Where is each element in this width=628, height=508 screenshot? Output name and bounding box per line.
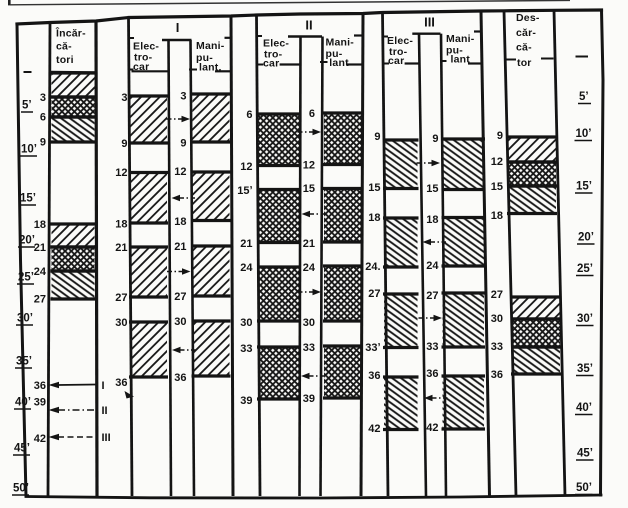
svg-text:15ʼ: 15ʼ bbox=[20, 193, 36, 205]
svg-text:36: 36 bbox=[174, 372, 186, 384]
svg-text:42: 42 bbox=[368, 423, 380, 435]
svg-text:12: 12 bbox=[303, 160, 315, 172]
svg-text:33: 33 bbox=[240, 343, 252, 355]
svg-text:lant: lant bbox=[451, 54, 471, 66]
svg-text:3: 3 bbox=[180, 91, 186, 103]
svg-text:33: 33 bbox=[426, 341, 438, 353]
svg-text:12: 12 bbox=[491, 156, 503, 168]
svg-text:Mani-: Mani- bbox=[446, 33, 475, 45]
svg-text:30: 30 bbox=[491, 313, 503, 325]
svg-text:15ʼ: 15ʼ bbox=[237, 185, 252, 197]
svg-text:10ʼ: 10ʼ bbox=[576, 128, 592, 140]
svg-text:36: 36 bbox=[368, 370, 380, 382]
svg-text:20ʼ: 20ʼ bbox=[578, 232, 594, 244]
svg-text:căr-: căr- bbox=[516, 27, 536, 39]
svg-text:18: 18 bbox=[174, 216, 186, 228]
svg-text:27: 27 bbox=[34, 294, 46, 306]
svg-text:tor: tor bbox=[517, 57, 532, 69]
svg-text:că-: că- bbox=[516, 42, 532, 54]
svg-text:35ʼ: 35ʼ bbox=[577, 363, 593, 375]
svg-text:36: 36 bbox=[34, 380, 46, 392]
svg-text:27: 27 bbox=[491, 289, 503, 301]
svg-text:21: 21 bbox=[240, 238, 252, 250]
svg-text:lant,: lant, bbox=[199, 62, 222, 74]
svg-text:9: 9 bbox=[40, 137, 46, 149]
svg-text:40ʼ: 40ʼ bbox=[576, 402, 592, 414]
svg-text:I: I bbox=[102, 380, 105, 392]
svg-text:18: 18 bbox=[368, 212, 380, 224]
svg-text:21: 21 bbox=[303, 238, 315, 250]
svg-text:II: II bbox=[102, 405, 108, 417]
svg-text:9: 9 bbox=[180, 138, 186, 150]
svg-text:21: 21 bbox=[174, 241, 186, 253]
svg-text:39: 39 bbox=[34, 397, 46, 409]
svg-text:9: 9 bbox=[497, 130, 503, 142]
svg-text:Încăr-: Încăr- bbox=[55, 27, 86, 40]
svg-text:30: 30 bbox=[174, 316, 186, 328]
svg-text:25ʼ: 25ʼ bbox=[577, 263, 593, 275]
svg-text:30: 30 bbox=[115, 317, 127, 329]
svg-text:car: car bbox=[133, 61, 149, 73]
svg-text:3: 3 bbox=[121, 92, 127, 104]
svg-text:27: 27 bbox=[368, 288, 380, 300]
svg-text:36: 36 bbox=[115, 377, 127, 389]
svg-text:30ʼ: 30ʼ bbox=[577, 313, 593, 325]
svg-text:27: 27 bbox=[426, 290, 438, 302]
svg-text:10ʼ: 10ʼ bbox=[21, 144, 37, 156]
svg-text:12: 12 bbox=[240, 161, 252, 173]
svg-text:42: 42 bbox=[426, 422, 438, 434]
svg-text:30: 30 bbox=[240, 317, 252, 329]
svg-text:18: 18 bbox=[426, 214, 438, 226]
svg-text:39: 39 bbox=[240, 395, 252, 407]
svg-text:33: 33 bbox=[491, 341, 503, 353]
svg-text:18: 18 bbox=[491, 210, 503, 222]
svg-text:lant: lant bbox=[329, 57, 349, 69]
svg-text:car: car bbox=[263, 58, 279, 70]
svg-text:6: 6 bbox=[40, 112, 46, 124]
svg-text:12: 12 bbox=[174, 166, 186, 178]
svg-text:9: 9 bbox=[121, 138, 127, 150]
svg-text:33ʼ: 33ʼ bbox=[365, 342, 380, 354]
svg-text:45ʼ: 45ʼ bbox=[577, 448, 593, 460]
svg-text:36: 36 bbox=[426, 368, 438, 380]
svg-text:24: 24 bbox=[240, 262, 253, 274]
svg-text:Mani-: Mani- bbox=[196, 40, 225, 52]
svg-text:I: I bbox=[176, 20, 180, 35]
svg-text:30ʼ: 30ʼ bbox=[17, 313, 33, 325]
svg-text:50ʼ: 50ʼ bbox=[576, 482, 592, 494]
svg-text:9: 9 bbox=[374, 131, 380, 143]
svg-text:21: 21 bbox=[34, 242, 46, 254]
svg-text:că-: că- bbox=[56, 41, 72, 53]
svg-text:18: 18 bbox=[34, 219, 46, 231]
svg-text:39: 39 bbox=[303, 393, 315, 405]
svg-text:15: 15 bbox=[303, 183, 315, 195]
svg-text:18: 18 bbox=[115, 219, 127, 231]
svg-text:50ʼ: 50ʼ bbox=[13, 483, 29, 495]
svg-text:24: 24 bbox=[426, 260, 439, 272]
svg-text:24: 24 bbox=[34, 266, 47, 278]
svg-text:tori: tori bbox=[56, 54, 74, 66]
svg-text:6: 6 bbox=[246, 109, 252, 121]
svg-text:II: II bbox=[305, 18, 312, 33]
svg-text:car: car bbox=[388, 55, 404, 67]
svg-text:27: 27 bbox=[174, 291, 186, 303]
svg-text:40ʼ: 40ʼ bbox=[15, 397, 31, 409]
svg-text:20ʼ: 20ʼ bbox=[19, 235, 35, 247]
svg-text:9: 9 bbox=[432, 133, 438, 145]
svg-text:21: 21 bbox=[115, 242, 127, 254]
svg-text:III: III bbox=[424, 15, 435, 30]
svg-text:35ʼ: 35ʼ bbox=[16, 356, 32, 368]
svg-text:30: 30 bbox=[303, 317, 315, 329]
svg-text:Des-: Des- bbox=[516, 12, 540, 24]
svg-text:5ʼ: 5ʼ bbox=[579, 91, 589, 103]
svg-text:Mani-: Mani- bbox=[326, 37, 355, 49]
svg-text:12: 12 bbox=[115, 167, 127, 179]
svg-text:33: 33 bbox=[303, 342, 315, 354]
svg-text:3: 3 bbox=[40, 92, 46, 104]
svg-text:24: 24 bbox=[303, 262, 316, 274]
svg-text:27: 27 bbox=[115, 292, 127, 304]
svg-text:45ʼ: 45ʼ bbox=[14, 443, 30, 455]
svg-text:III: III bbox=[102, 432, 111, 444]
svg-text:25ʼ: 25ʼ bbox=[18, 272, 34, 284]
svg-text:15: 15 bbox=[368, 182, 380, 194]
svg-text:15: 15 bbox=[426, 183, 438, 195]
svg-text:36: 36 bbox=[491, 369, 503, 381]
svg-text:6: 6 bbox=[309, 108, 315, 120]
svg-text:42: 42 bbox=[34, 433, 46, 445]
svg-text:15: 15 bbox=[491, 181, 503, 193]
svg-text:24.: 24. bbox=[365, 261, 380, 273]
svg-text:15ʼ: 15ʼ bbox=[576, 181, 592, 193]
svg-text:5ʼ: 5ʼ bbox=[22, 100, 32, 112]
